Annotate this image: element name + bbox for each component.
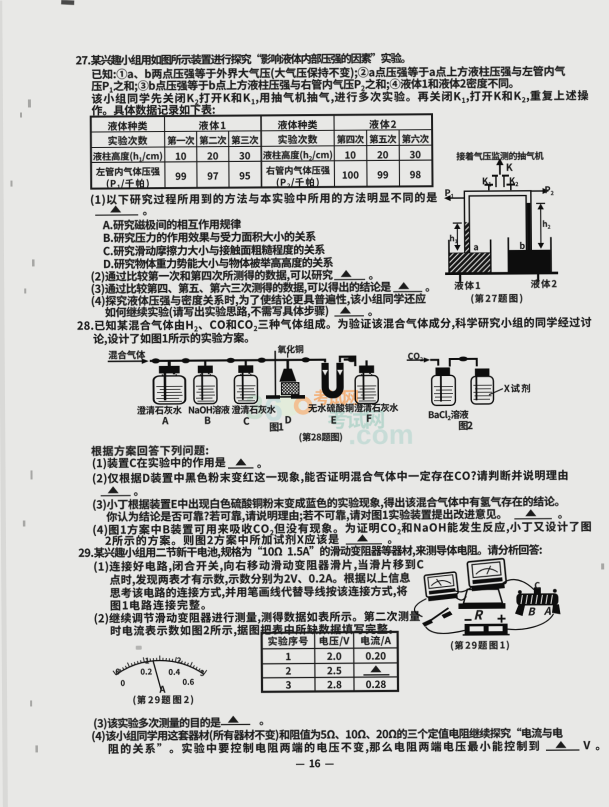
- svg-text:.com: .com: [348, 419, 414, 450]
